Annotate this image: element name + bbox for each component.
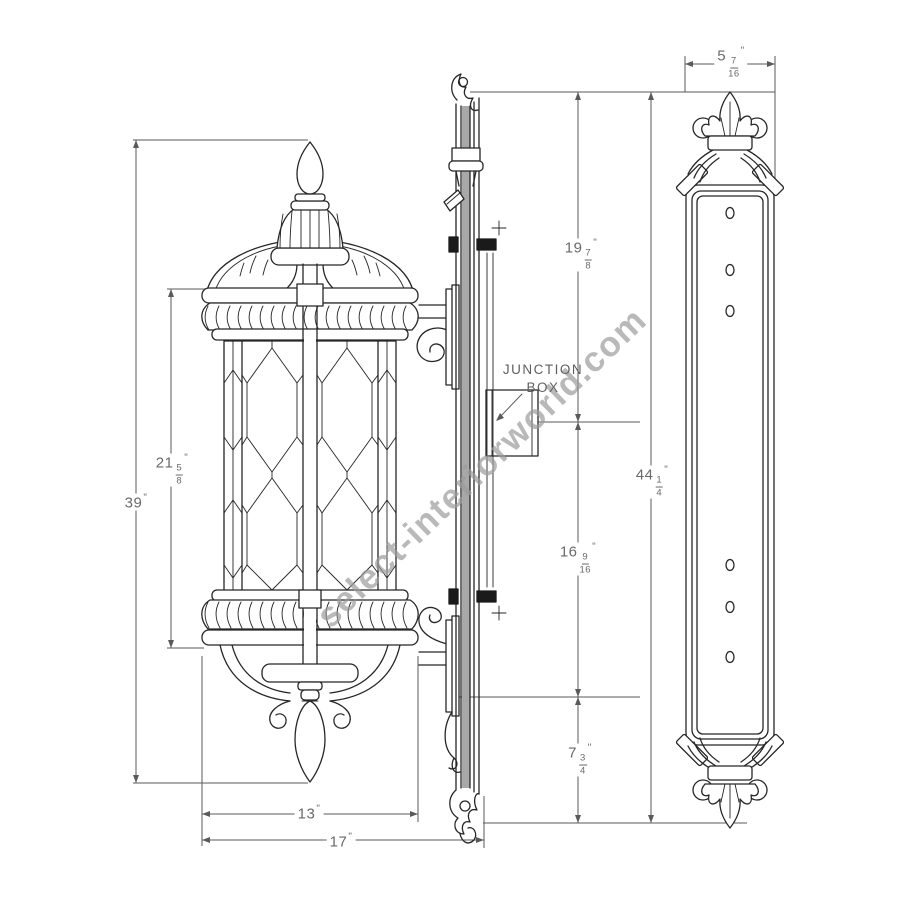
dimension-backplate-height: 4414" — [633, 466, 672, 499]
dimension-body-height: 2158" — [153, 454, 192, 487]
dimension-outlet-to-arm: 16916" — [557, 543, 599, 576]
dimension-lines — [133, 56, 775, 848]
dimension-arm-to-bottom: 734" — [565, 744, 595, 777]
dimension-overall-depth: 17" — [327, 833, 356, 850]
dimension-body-width: 13" — [295, 805, 324, 822]
back-view — [676, 92, 785, 828]
backplate — [676, 164, 785, 767]
front-view — [202, 142, 459, 782]
dimension-top-to-outlet: 1978" — [562, 239, 601, 272]
lantern-dimension-drawing: select-interiorworld.com 39" 2158" 13" 1… — [0, 0, 900, 900]
dimension-overall-height: 39" — [122, 494, 151, 511]
dimension-backplate-width: 5716" — [714, 47, 747, 80]
technical-drawing-svg — [0, 0, 900, 900]
top-finial — [271, 142, 349, 290]
junction-box-label: JUNCTION BOX — [503, 361, 583, 397]
bolt-top — [449, 221, 506, 252]
bottom-finial — [262, 664, 358, 782]
mounting-arm-top — [417, 285, 459, 389]
mounting-arm-bottom — [419, 607, 459, 716]
screw-holes — [726, 208, 734, 663]
